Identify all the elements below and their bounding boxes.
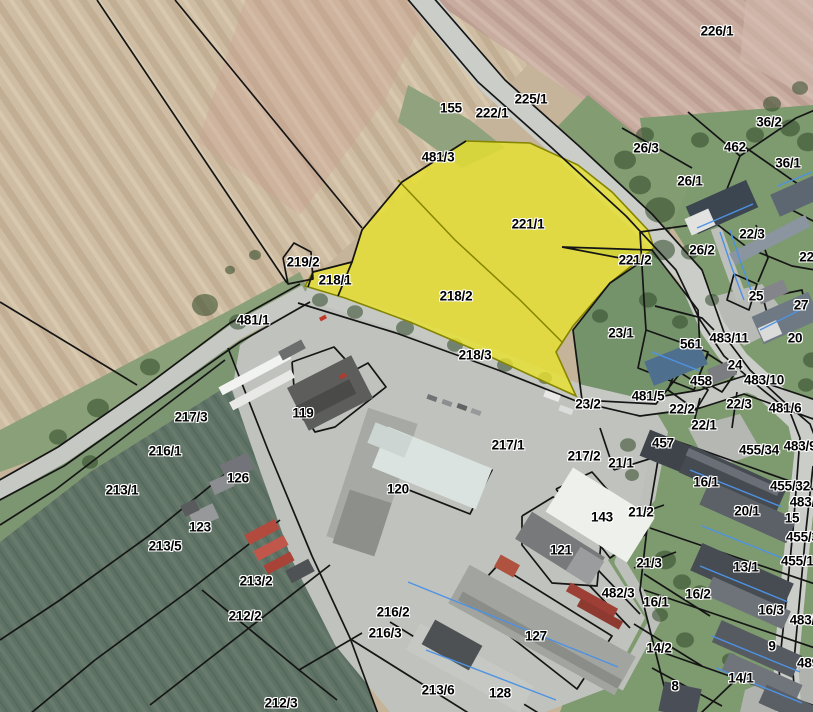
tree [672,315,688,329]
tree [140,359,160,376]
tree [192,294,218,316]
tree [625,469,639,481]
tree [676,632,694,647]
tree [225,266,235,275]
tree [312,293,328,307]
tree [629,176,651,195]
tree [692,585,708,599]
tree [249,250,261,260]
map-canvas [0,0,813,712]
tree [645,197,675,223]
tree [652,608,668,622]
tree [620,438,636,452]
tree [763,96,781,111]
tree [592,309,608,323]
tree [347,305,363,319]
tree [691,132,709,147]
tree [614,151,636,170]
cadastral-map-viewport[interactable]: 226/1155222/1225/136/226/346236/1481/326… [0,0,813,712]
tree [673,574,691,589]
tree [746,127,764,142]
tree [792,81,808,95]
tree [639,292,657,307]
